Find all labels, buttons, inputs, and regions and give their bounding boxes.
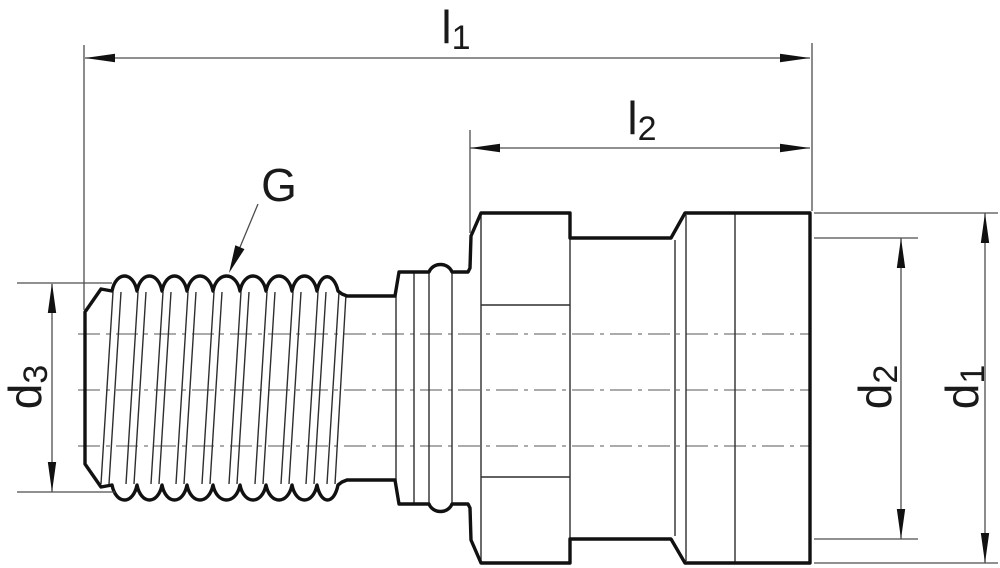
label-base: l bbox=[627, 92, 637, 144]
thread-label-g: G bbox=[261, 159, 297, 211]
label-subscript: 2 bbox=[638, 110, 657, 148]
label-base: G bbox=[261, 159, 297, 211]
dimension-label-l2: l2 bbox=[627, 92, 656, 148]
drawing-canvas: l1 l2 G d3 d2 d1 bbox=[0, 0, 1000, 568]
label-base: l bbox=[441, 1, 451, 53]
g-leader-line bbox=[238, 204, 258, 252]
dimension-label-l1: l1 bbox=[441, 1, 470, 57]
label-base: d bbox=[936, 384, 988, 410]
fitting-technical-drawing: l1 l2 G d3 d2 d1 bbox=[0, 0, 1000, 568]
dimension-label-d2: d2 bbox=[849, 365, 905, 410]
dimension-label-d3: d3 bbox=[0, 365, 55, 410]
label-subscript: 1 bbox=[954, 365, 992, 384]
label-subscript: 3 bbox=[17, 365, 55, 384]
dimension-label-d1: d1 bbox=[936, 365, 992, 410]
label-subscript: 2 bbox=[867, 365, 905, 384]
label-base: d bbox=[0, 384, 51, 410]
label-base: d bbox=[849, 384, 901, 410]
label-subscript: 1 bbox=[452, 19, 471, 57]
